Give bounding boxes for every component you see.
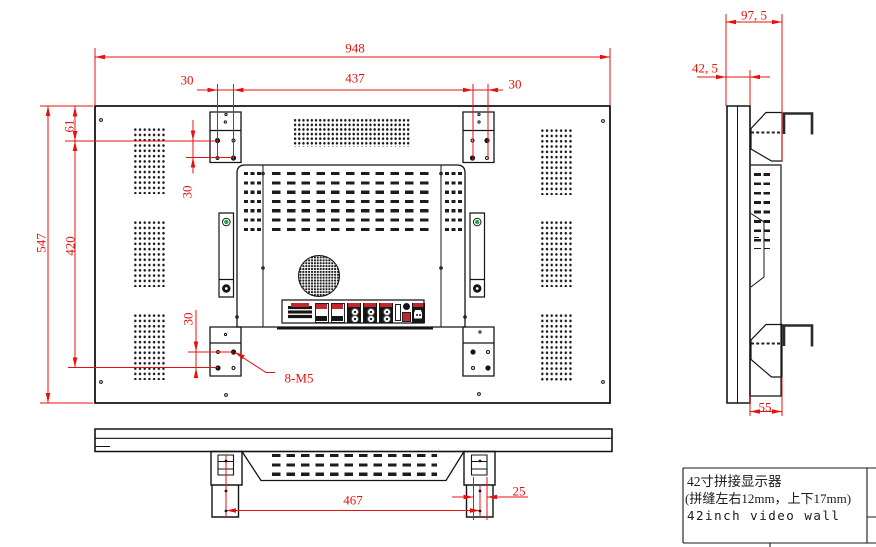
handle-screws [222, 218, 481, 292]
dim-hole-offset-right: 30 [509, 77, 522, 90]
dim-depth-panel: 42, 5 [692, 62, 718, 75]
dim-hole-span-horizontal: 437 [345, 72, 365, 85]
rear-view [95, 106, 610, 403]
drawing-sheet: 948 437 30 30 61 547 420 30 30 8-M5 97, … [0, 0, 876, 547]
dim-edge-to-hole-top: 61 [63, 119, 76, 132]
dim-bracket-pitch-top: 30 [181, 185, 194, 198]
dim-bracket-offset-bottom: 25 [513, 484, 526, 497]
dim-bracket-width: 55 [759, 401, 772, 414]
title-product-en: 42inch video wall [687, 510, 840, 523]
title-product-cn: 42寸拼接显示器 [687, 475, 782, 489]
drawing-linework [0, 0, 876, 547]
dim-hole-offset-left: 30 [181, 73, 194, 86]
dim-bracket-pitch-bottom: 30 [181, 312, 194, 325]
dimension-lines [40, 14, 782, 520]
side-view [727, 106, 812, 403]
dim-bracket-span-bottom: 467 [343, 494, 363, 507]
dim-hole-span-vertical: 420 [64, 236, 77, 256]
callout-thread-8m5: 8-M5 [285, 371, 314, 384]
title-seam-note: (拼缝左右12mm，上下17mm) [685, 492, 851, 505]
dim-overall-width: 948 [345, 42, 365, 55]
dim-depth-overall: 97, 5 [741, 9, 767, 22]
dim-overall-height: 547 [34, 233, 47, 253]
